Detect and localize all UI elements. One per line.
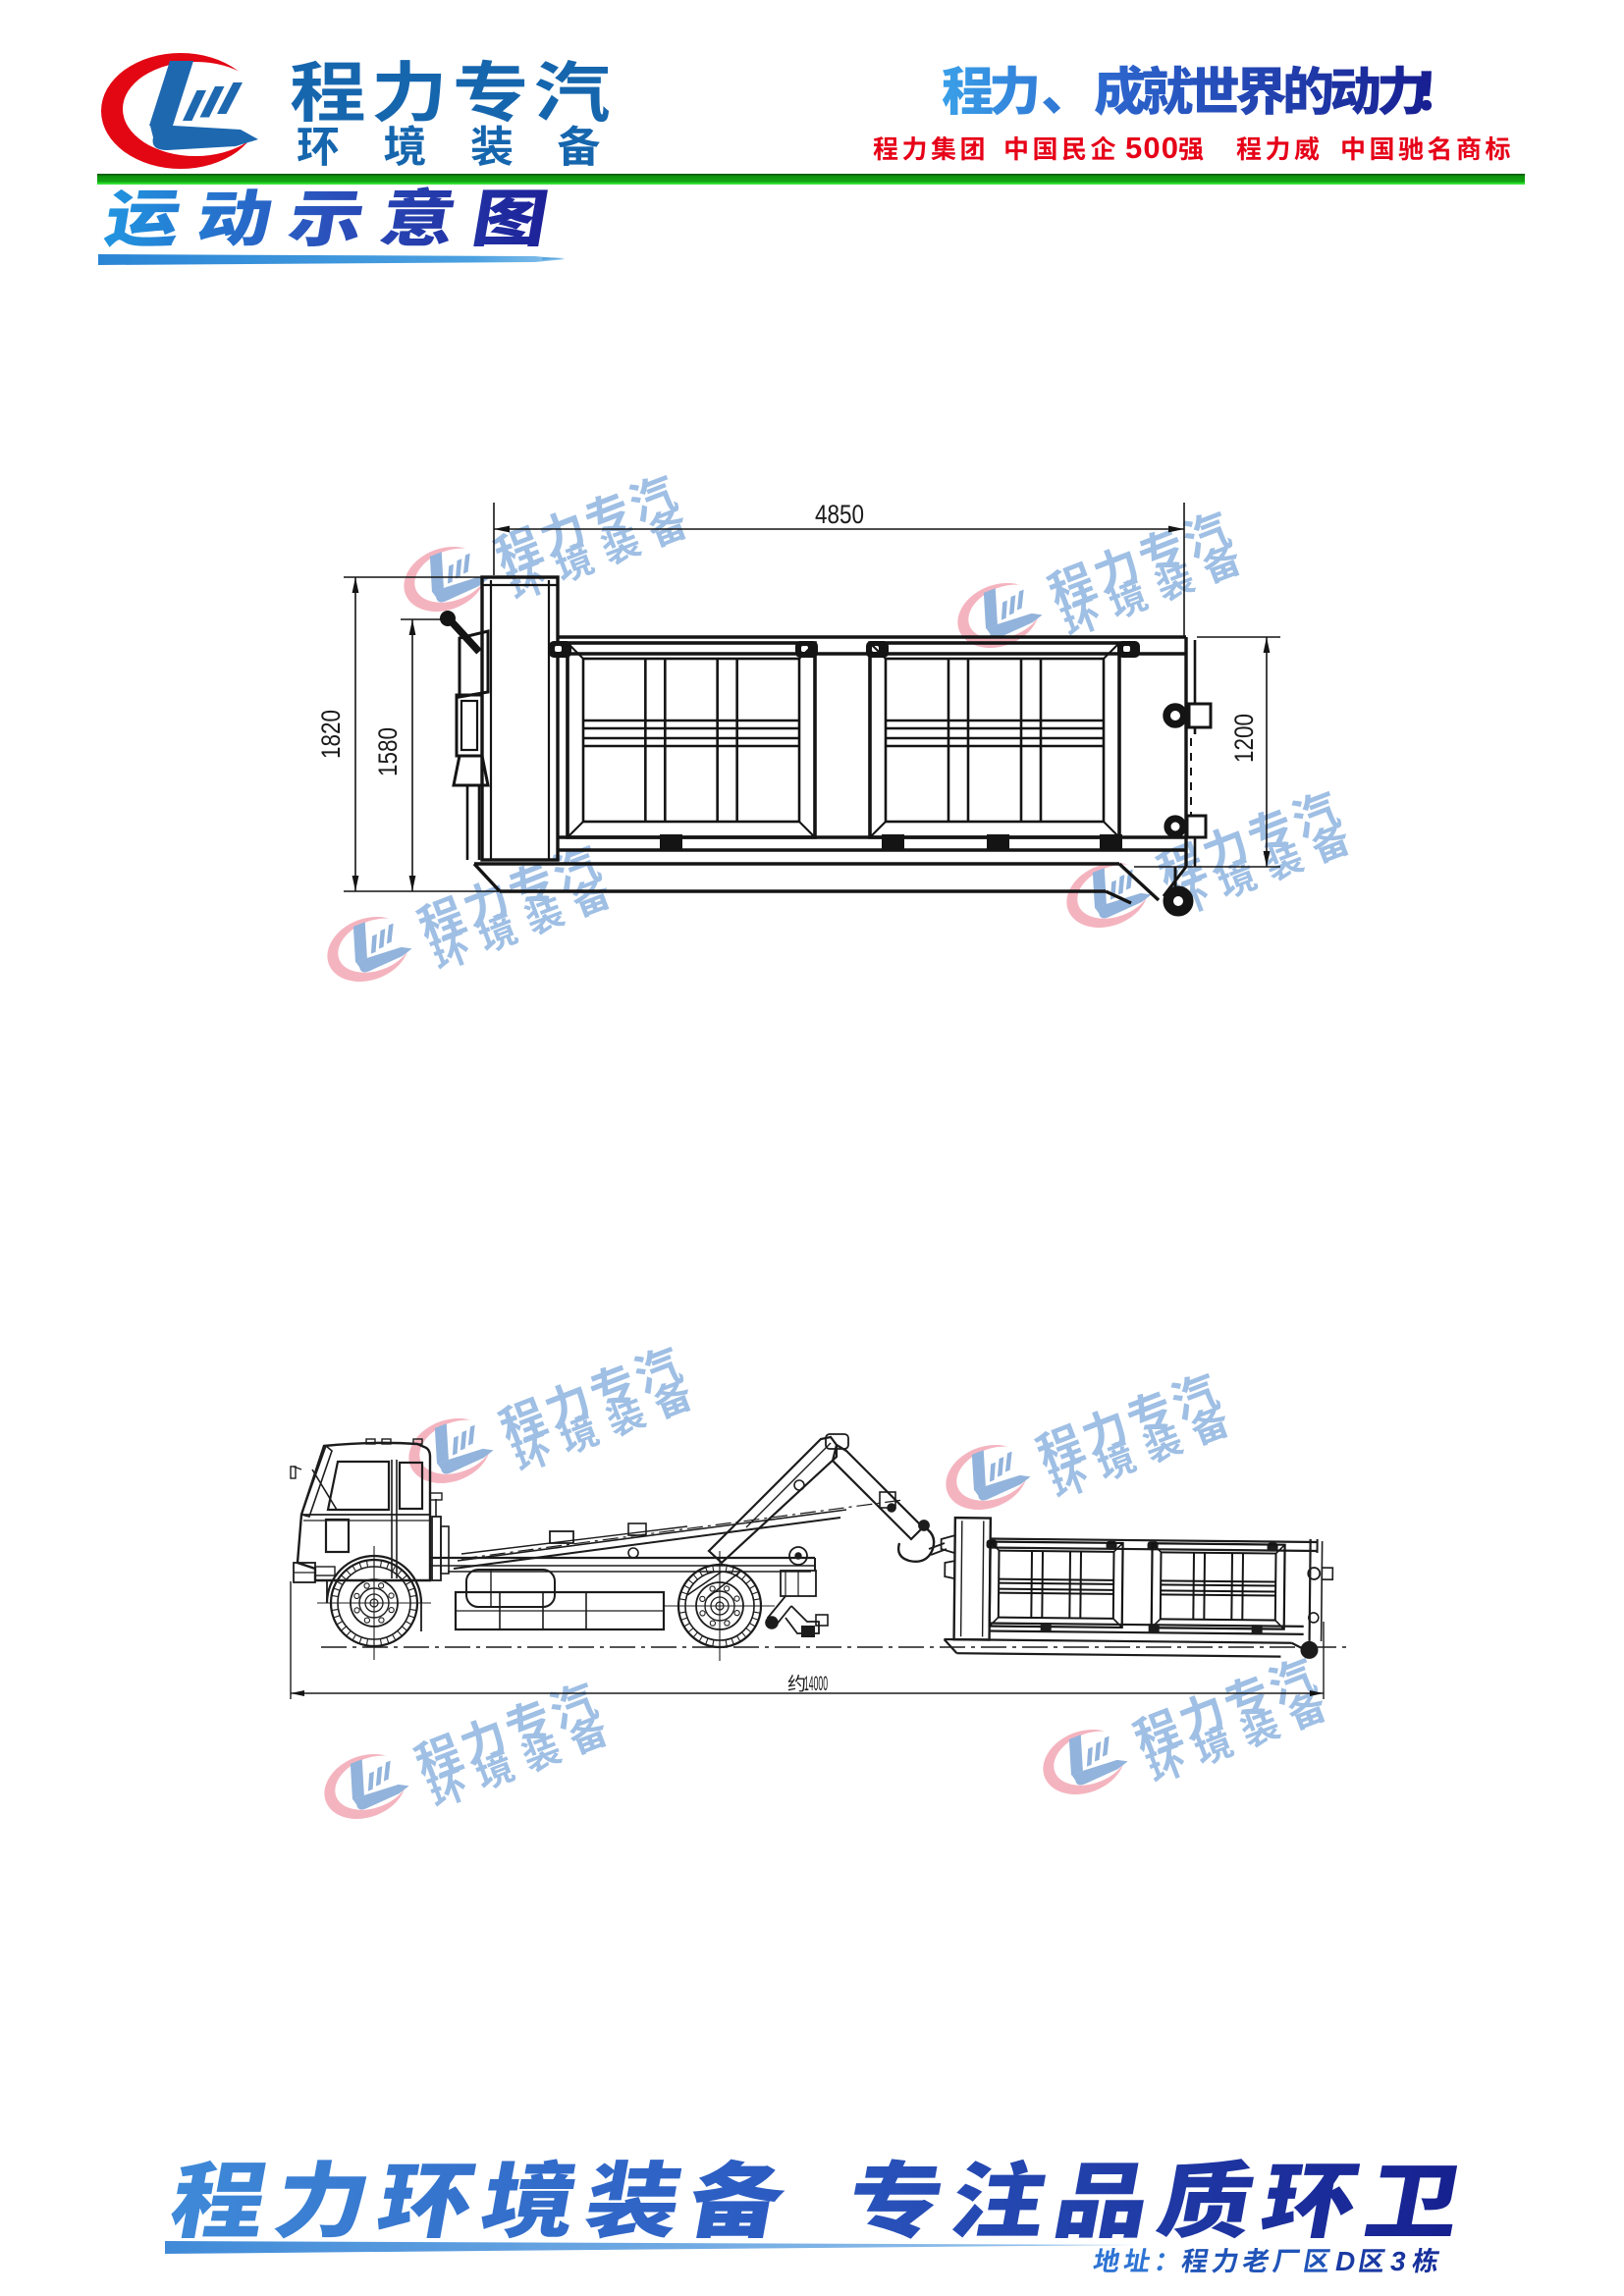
svg-text:1200: 1200 (1229, 714, 1259, 763)
svg-text:1820: 1820 (316, 710, 346, 759)
svg-text:3: 3 (1390, 2246, 1406, 2276)
svg-text:4850: 4850 (815, 500, 864, 529)
svg-text:1580: 1580 (373, 727, 403, 776)
svg-text:D: D (1335, 2246, 1355, 2276)
svg-text:14000: 14000 (804, 1673, 828, 1695)
svg-text:500: 500 (1125, 131, 1178, 165)
